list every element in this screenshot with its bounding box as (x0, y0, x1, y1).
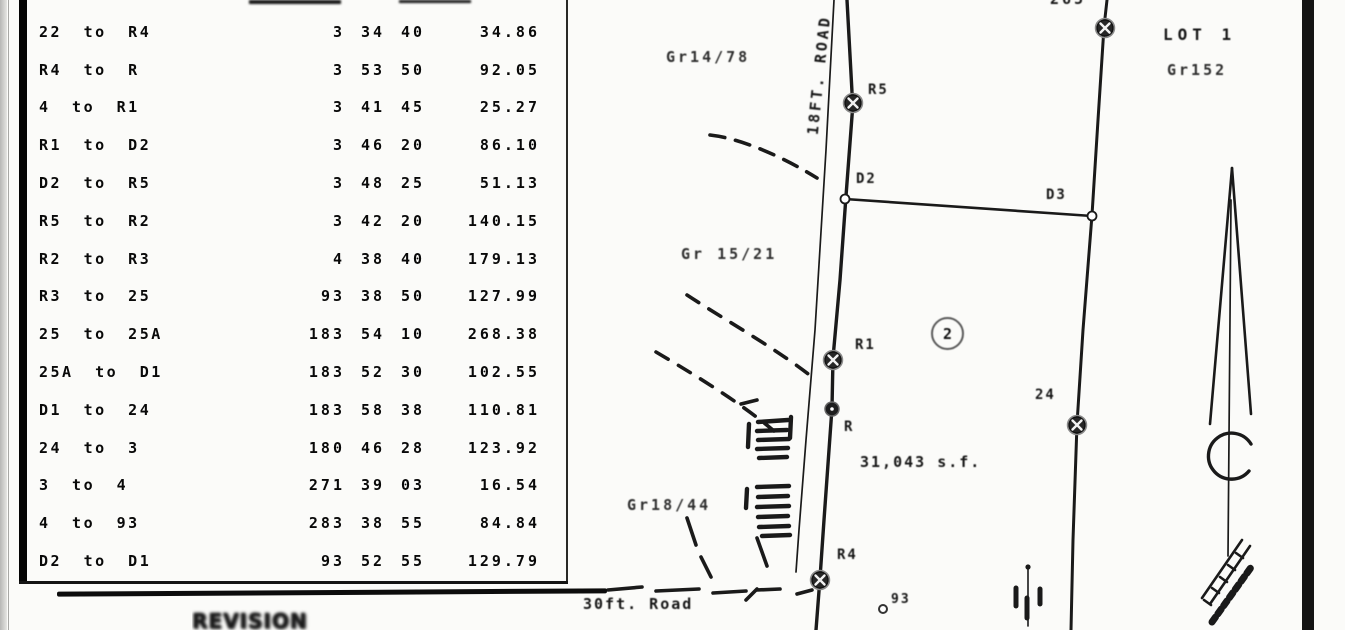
point-label-93: 93 (891, 592, 911, 607)
course-label: 22 to R4 (27, 23, 291, 41)
bearing-degrees: 183 (291, 363, 345, 381)
dashed-line-lower (656, 352, 774, 431)
bearing-minutes: 52 (345, 552, 385, 570)
table-row: 3 to 4 271 39 03 16.54 (27, 467, 566, 505)
course-label: 4 to R1 (27, 98, 291, 116)
distance-value: 129.79 (425, 552, 566, 570)
illegible-stamp: REVISION (192, 609, 342, 630)
course-label: D2 to D1 (27, 552, 291, 570)
bearing-minutes: 46 (345, 136, 385, 154)
course-label: 25A to D1 (27, 363, 291, 381)
bearing-minutes: 52 (345, 363, 385, 381)
bearing-minutes: 46 (345, 439, 385, 457)
monument-icon-r4 (811, 571, 830, 590)
grant-ref-mid: Gr 15/21 (681, 245, 777, 263)
point-label-d2: D2 (856, 171, 877, 187)
table-row: D2 to D1 93 52 55 129.79 (27, 542, 566, 580)
course-label: R3 to 25 (27, 287, 291, 305)
stamp-text: REVISION (192, 609, 308, 630)
table-row: R4 to R 3 53 50 92.05 (27, 51, 566, 89)
distance-value: 127.99 (425, 287, 566, 305)
bearing-minutes: 58 (345, 401, 385, 419)
monument-icon-r1 (824, 351, 843, 370)
distance-value: 179.13 (425, 250, 566, 268)
point-icon-93 (879, 605, 887, 613)
distance-value: 51.13 (425, 174, 566, 192)
table-row: 25A to D1 183 52 30 102.55 (27, 353, 566, 391)
bearing-seconds: 45 (385, 98, 425, 116)
bearing-seconds: 55 (385, 514, 425, 532)
bearing-degrees: 283 (291, 514, 345, 532)
course-label: R4 to R (27, 61, 291, 79)
bearing-minutes: 48 (345, 174, 385, 192)
bearing-minutes: 34 (345, 23, 385, 41)
bearing-minutes: 42 (345, 212, 385, 230)
bearing-degrees: 3 (291, 136, 345, 154)
bearing-seconds: 28 (385, 439, 425, 457)
table-row: R3 to 25 93 38 50 127.99 (27, 278, 566, 316)
north-arrow-n (1202, 540, 1252, 622)
point-icon-d3 (1088, 212, 1097, 221)
distance-value: 25.27 (425, 98, 566, 116)
table-row: 4 to 93 283 38 55 84.84 (27, 504, 566, 542)
monument-icon-r5 (844, 94, 863, 113)
lot2-number: 2 (943, 325, 952, 343)
bearing-seconds: 40 (385, 23, 425, 41)
distance-value: 84.84 (425, 514, 566, 532)
lot-area-label: 31,043 s.f. (860, 453, 981, 471)
monument-icon-24 (1068, 416, 1087, 435)
bearing-seconds: 20 (385, 136, 425, 154)
dashed-line-upper (710, 135, 817, 178)
bearing-seconds: 38 (385, 401, 425, 419)
table-row: R1 to D2 3 46 20 86.10 (27, 126, 566, 164)
bearing-degrees: 3 (291, 23, 345, 41)
course-label: 4 to 93 (27, 514, 291, 532)
lot1-label: LOT 1 (1163, 25, 1236, 44)
bearing-degrees: 180 (291, 439, 345, 457)
bearing-seconds: 25 (385, 174, 425, 192)
bearing-degrees: 3 (291, 212, 345, 230)
bearing-seconds: 40 (385, 250, 425, 268)
bearing-degrees: 93 (291, 552, 345, 570)
bearing-seconds: 50 (385, 287, 425, 305)
bearing-seconds: 55 (385, 552, 425, 570)
north-arrow (1202, 168, 1252, 622)
table-row: R5 to R2 3 42 20 140.15 (27, 202, 566, 240)
bearing-seconds: 10 (385, 325, 425, 343)
course-label: 3 to 4 (27, 476, 291, 494)
table-bottom-border (19, 581, 568, 584)
cut-row-remnant (249, 0, 341, 4)
bearing-minutes: 54 (345, 325, 385, 343)
table-row: R2 to R3 4 38 40 179.13 (27, 240, 566, 278)
cut-label-top: 265 (1050, 0, 1086, 8)
point-label-24: 24 (1035, 387, 1056, 403)
bearing-seconds: 50 (385, 61, 425, 79)
distance-value: 110.81 (425, 401, 566, 419)
course-label: 25 to 25A (27, 325, 291, 343)
distance-value: 268.38 (425, 325, 566, 343)
point-label-r4: R4 (837, 547, 858, 563)
wall-symbol-lower (746, 486, 790, 536)
lot1-west-line (1071, 0, 1107, 630)
bearing-minutes: 41 (345, 98, 385, 116)
grant-ref-upper: Gr14/78 (666, 48, 750, 66)
table-row: 4 to R1 3 41 45 25.27 (27, 89, 566, 127)
distance-value: 102.55 (425, 363, 566, 381)
bearing-minutes: 39 (345, 476, 385, 494)
point-label-d3: D3 (1046, 187, 1067, 203)
table-row: D2 to R5 3 48 25 51.13 (27, 164, 566, 202)
grant-ref-lower: Gr18/44 (627, 496, 711, 514)
course-label: R5 to R2 (27, 212, 291, 230)
bearing-minutes: 53 (345, 61, 385, 79)
distance-value: 34.86 (425, 23, 566, 41)
stake-symbol (1016, 564, 1040, 626)
lot2-number-circle: 2 (931, 317, 964, 350)
bearing-seconds: 03 (385, 476, 425, 494)
distance-value: 123.92 (425, 439, 566, 457)
bearing-minutes: 38 (345, 287, 385, 305)
bearing-degrees: 271 (291, 476, 345, 494)
scan-right-edge-bar (1302, 0, 1314, 630)
wall-symbol-upper (748, 417, 791, 458)
distance-value: 140.15 (425, 212, 566, 230)
bearing-minutes: 38 (345, 514, 385, 532)
bearing-degrees: 93 (291, 287, 345, 305)
bearing-seconds: 20 (385, 212, 425, 230)
course-label: D2 to R5 (27, 174, 291, 192)
bearing-seconds: 30 (385, 363, 425, 381)
distance-value: 16.54 (425, 476, 566, 494)
point-icon-r (825, 402, 839, 416)
point-label-r1: R1 (855, 337, 876, 353)
table-row: D1 to 24 183 58 38 110.81 (27, 391, 566, 429)
bearing-degrees: 3 (291, 174, 345, 192)
point-label-r: R (844, 419, 854, 435)
bearing-degrees: 3 (291, 98, 345, 116)
course-label: R2 to R3 (27, 250, 291, 268)
course-label: D1 to 24 (27, 401, 291, 419)
survey-plat-scan: 22 to R4 3 34 40 34.86 R4 to R 3 53 50 9… (0, 0, 1345, 630)
course-label: 24 to 3 (27, 439, 291, 457)
point-label-r5: R5 (868, 82, 889, 98)
lot1-grant-label: Gr152 (1167, 61, 1227, 79)
table-row: 24 to 3 180 46 28 123.92 (27, 429, 566, 467)
distance-value: 92.05 (425, 61, 566, 79)
bearing-degrees: 3 (291, 61, 345, 79)
distance-value: 86.10 (425, 136, 566, 154)
table-row: 25 to 25A 183 54 10 268.38 (27, 315, 566, 353)
bearing-degrees: 183 (291, 325, 345, 343)
bearing-degrees: 183 (291, 401, 345, 419)
bearing-distance-table: 22 to R4 3 34 40 34.86 R4 to R 3 53 50 9… (19, 0, 568, 582)
bearing-degrees: 4 (291, 250, 345, 268)
table-row: 22 to R4 3 34 40 34.86 (27, 13, 566, 51)
course-label: R1 to D2 (27, 136, 291, 154)
monument-icon-top (1096, 19, 1115, 38)
bearing-table-rows: 22 to R4 3 34 40 34.86 R4 to R 3 53 50 9… (27, 0, 566, 580)
bearing-minutes: 38 (345, 250, 385, 268)
point-icon-d2 (841, 195, 850, 204)
cut-row-remnant (399, 0, 471, 3)
bottom-road-label: 30ft. Road (583, 595, 693, 613)
dashed-line-mid (687, 295, 817, 381)
